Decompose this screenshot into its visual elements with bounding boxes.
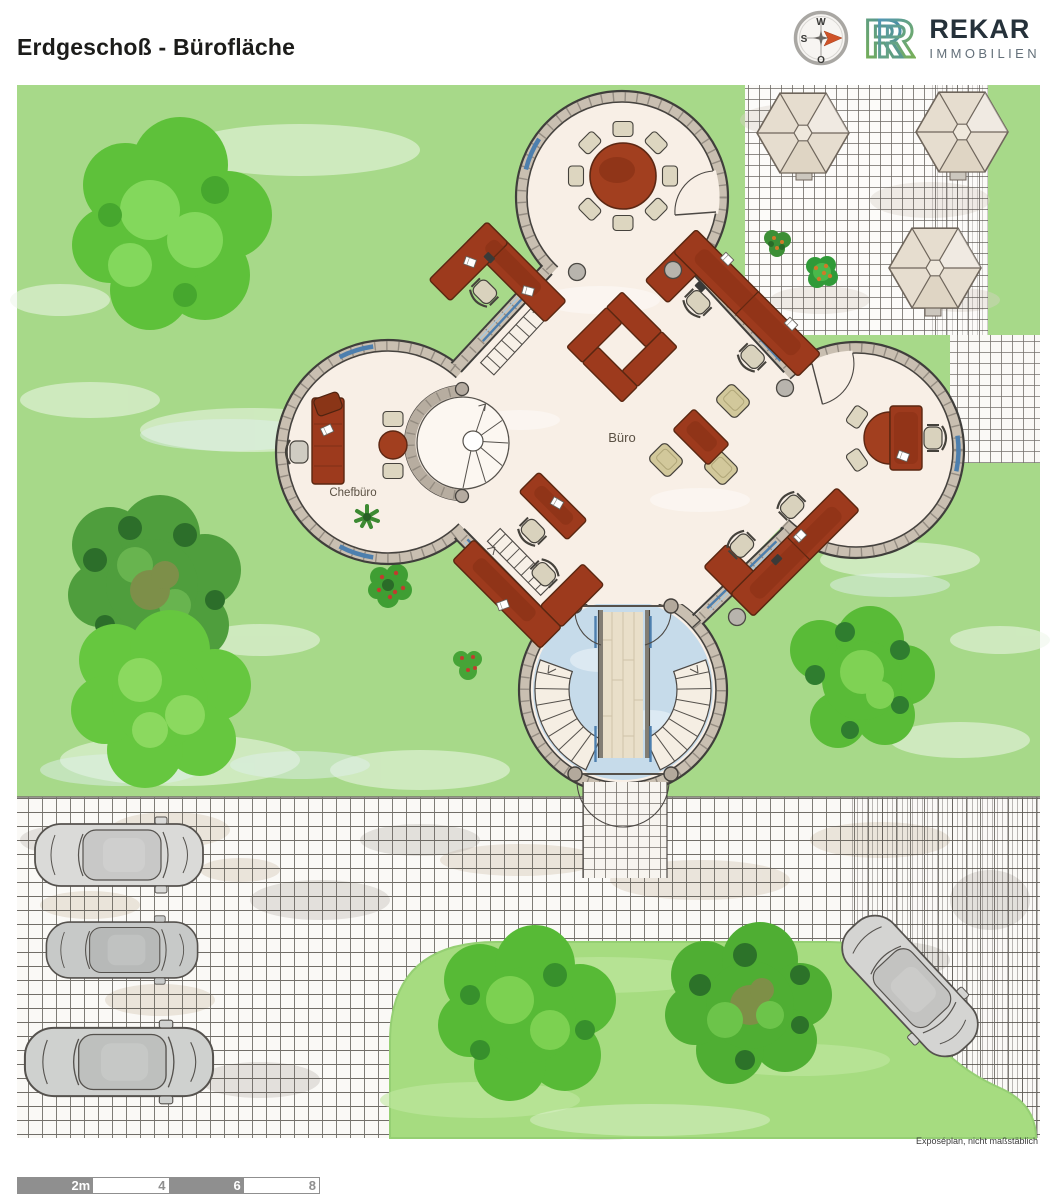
entrance-walkway bbox=[577, 781, 669, 878]
compass-east-label: O bbox=[818, 55, 826, 66]
scale-segment: 2m bbox=[18, 1178, 93, 1193]
glass-bridge bbox=[596, 610, 651, 762]
parked-car bbox=[25, 1020, 213, 1104]
compass-west-label: W bbox=[817, 17, 827, 28]
brand-subtitle: IMMOBILIEN bbox=[929, 46, 1040, 61]
room-label-chefbuero: Chefbüro bbox=[329, 487, 376, 499]
page-title: Erdgeschoß - Bürofläche bbox=[17, 34, 295, 61]
compass-south-label: S bbox=[801, 34, 808, 45]
floorplan-illustration: Büro Chefbüro bbox=[0, 0, 1057, 1200]
brand-header: W S O R R REKAR IMMOBILIEN bbox=[791, 8, 1040, 68]
scale-segment: 6 bbox=[169, 1178, 244, 1193]
parked-car bbox=[35, 817, 203, 893]
rekar-logo-icon: R R bbox=[864, 9, 916, 67]
plan-disclaimer: Exposéplan, nicht maßstäblich bbox=[916, 1136, 1038, 1146]
scale-segment: 8 bbox=[244, 1178, 319, 1193]
parked-car bbox=[46, 916, 197, 984]
scale-segment: 4 bbox=[93, 1178, 168, 1193]
floorplan-page: Büro Chefbüro Erdgeschoß - Bürofläche W … bbox=[0, 0, 1057, 1200]
scale-label: 2m bbox=[71, 1179, 90, 1192]
room-label-buero: Büro bbox=[608, 430, 635, 445]
compass-icon: W S O bbox=[791, 8, 851, 68]
scale-label: 6 bbox=[234, 1179, 241, 1192]
scale-label: 8 bbox=[309, 1179, 316, 1192]
terrace-shrub bbox=[806, 256, 838, 288]
scale-label: 4 bbox=[158, 1179, 165, 1192]
svg-text:R: R bbox=[876, 9, 915, 67]
brand-name: REKAR bbox=[929, 15, 1040, 43]
scale-bar: 2m 4 6 8 bbox=[17, 1177, 320, 1194]
